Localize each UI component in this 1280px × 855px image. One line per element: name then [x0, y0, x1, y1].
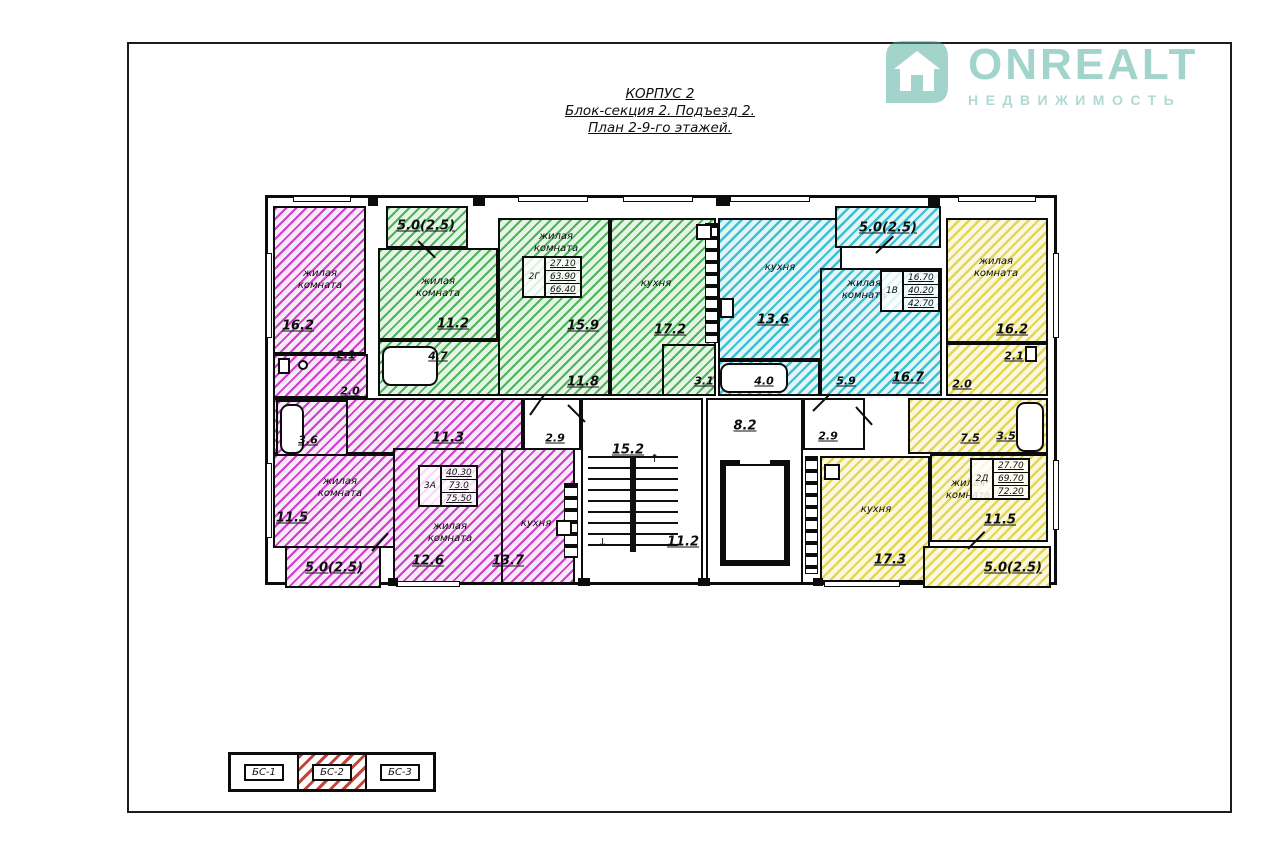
- legend-label: БС-3: [380, 764, 420, 781]
- apartment-stamp-2d: 2Д 27.70 69.70 72.20: [970, 458, 1030, 500]
- bathtub-icon: [1016, 402, 1044, 452]
- stove-icon: [824, 464, 840, 480]
- stove-icon: [696, 224, 712, 240]
- wall-pier: [578, 578, 590, 586]
- stove-icon: [556, 520, 572, 536]
- area-label: 11.8: [567, 375, 599, 390]
- window: [293, 196, 351, 202]
- area-label: 5.0(2.5): [984, 561, 1042, 576]
- area-label: 7.5: [960, 432, 980, 445]
- logo-brand: ONREALT: [968, 40, 1198, 90]
- elevator-door: [740, 456, 770, 464]
- window: [518, 196, 588, 202]
- area-label: 3.6: [298, 434, 318, 447]
- vent-shaft: [705, 223, 718, 343]
- window: [266, 463, 272, 538]
- logo-tagline: НЕДВИЖИМОСТЬ: [968, 92, 1198, 108]
- onrealt-watermark: ONREALT НЕДВИЖИМОСТЬ: [878, 28, 1234, 120]
- area-label: 2.0: [952, 378, 972, 391]
- apartment-code: 3А: [420, 467, 442, 505]
- area-label: 2.0: [340, 385, 360, 398]
- legend-cell-bs2-current: БС-2: [299, 755, 367, 789]
- window: [1053, 253, 1059, 338]
- area-label: 13.6: [757, 313, 789, 328]
- window: [266, 253, 272, 338]
- legend-cell-bs3: БС-3: [367, 755, 433, 789]
- floorplan-sheet: КОРПУС 2 Блок-секция 2. Подъезд 2. План …: [0, 0, 1280, 855]
- area-label: 17.2: [654, 323, 686, 338]
- stair-arrow-down-icon: ↓: [598, 536, 607, 549]
- area-label: 15.9: [567, 319, 599, 334]
- house-pin-icon: [878, 35, 956, 113]
- legend-label: БС-1: [244, 764, 284, 781]
- apartment-stamp-1v: 1В 16.70 40.20 42.70: [880, 270, 940, 312]
- area-label: 12.6: [412, 554, 444, 569]
- area-label: 16.2: [996, 323, 1028, 338]
- area-label: 11.2: [437, 317, 469, 332]
- stamp-total-area: 40.20: [904, 285, 938, 298]
- sink-icon: [298, 360, 308, 370]
- toilet-icon: [278, 358, 290, 374]
- area-label: 16.7: [892, 371, 924, 386]
- apartment-code: 1В: [882, 272, 904, 310]
- elevator-shaft-icon: [720, 460, 790, 566]
- window: [730, 196, 810, 202]
- room-label: жилая комната: [407, 276, 469, 300]
- room-label: жилая комната: [309, 476, 371, 500]
- window: [824, 581, 900, 587]
- floor-plan: ↑ ↓: [265, 195, 1057, 585]
- apartment-stamp-2g: 2Г 27.10 63.90 66.40: [522, 256, 582, 298]
- title-line-2: Блок-секция 2. Подъезд 2.: [520, 103, 800, 120]
- room-label: жилая комната: [965, 256, 1027, 280]
- stamp-total-with-balcony: 66.40: [546, 284, 580, 296]
- area-label: 13.7: [492, 554, 524, 569]
- window: [396, 581, 460, 587]
- area-label: 11.2: [667, 535, 699, 550]
- window: [1053, 460, 1059, 530]
- vent-shaft: [805, 456, 818, 574]
- area-label: 5.0(2.5): [859, 221, 917, 236]
- room-label: кухня: [641, 278, 671, 290]
- toilet-icon: [1025, 346, 1037, 362]
- area-label: 15.2: [612, 443, 644, 458]
- room-label: жилая комната: [419, 521, 481, 545]
- area-label: 4.7: [428, 350, 448, 363]
- window: [958, 196, 1036, 202]
- stair-arrow-up-icon: ↑: [650, 452, 659, 465]
- area-label: 3.1: [694, 375, 714, 388]
- room-label: кухня: [861, 504, 891, 516]
- wall-pier: [473, 198, 485, 206]
- stamp-total-area: 63.90: [546, 271, 580, 284]
- wall-pier: [388, 578, 398, 586]
- wall-pier: [368, 198, 378, 206]
- stamp-total-with-balcony: 75.50: [442, 493, 476, 505]
- title-line-1: КОРПУС 2: [520, 86, 800, 103]
- apartment-stamp-3a: 3А 40.30 73.0 75.50: [418, 465, 478, 507]
- legend-cell-bs1: БС-1: [231, 755, 299, 789]
- area-label: 2.1: [336, 349, 356, 362]
- staircase-icon: ↑ ↓: [588, 456, 678, 552]
- area-label: 5.0(2.5): [397, 219, 455, 234]
- area-label: 5.0(2.5): [305, 561, 363, 576]
- area-label: 2.1: [1004, 350, 1024, 363]
- block-section-legend: БС-1 БС-2 БС-3: [228, 752, 436, 792]
- room-label: жилая комната: [521, 231, 591, 255]
- bathtub-icon: [280, 404, 304, 454]
- wall-pier: [813, 578, 823, 586]
- area-label: 2.9: [545, 432, 565, 445]
- legend-label: БС-2: [312, 764, 352, 781]
- stamp-total-with-balcony: 42.70: [904, 298, 938, 310]
- apartment-code: 2Г: [524, 258, 546, 296]
- stove-icon: [720, 298, 734, 318]
- area-label: 11.3: [432, 431, 464, 446]
- area-label: 2.9: [818, 430, 838, 443]
- window: [623, 196, 693, 202]
- area-label: 5.9: [836, 375, 856, 388]
- room-label: кухня: [521, 518, 551, 530]
- area-label: 4.0: [754, 375, 774, 388]
- wall-pier: [716, 198, 730, 206]
- stamp-total-area: 69.70: [994, 473, 1028, 486]
- wall: [662, 344, 664, 396]
- stamp-living-area: 40.30: [442, 467, 476, 480]
- area-label: 11.5: [984, 513, 1016, 528]
- apartment-code: 2Д: [972, 460, 994, 498]
- area-label: 3.5: [996, 430, 1016, 443]
- stair-divider: [630, 456, 636, 552]
- wall-pier: [928, 198, 940, 206]
- stamp-total-with-balcony: 72.20: [994, 486, 1028, 498]
- stamp-living-area: 27.70: [994, 460, 1028, 473]
- stamp-total-area: 73.0: [442, 480, 476, 493]
- title-line-3: План 2-9-го этажей.: [520, 120, 800, 137]
- stamp-living-area: 27.10: [546, 258, 580, 271]
- area-label: 11.5: [276, 511, 308, 526]
- drawing-title: КОРПУС 2 Блок-секция 2. Подъезд 2. План …: [520, 86, 800, 137]
- room-label: кухня: [765, 262, 795, 274]
- wall-pier: [698, 578, 710, 586]
- area-label: 8.2: [733, 419, 756, 434]
- room-region-3a-living2: [273, 454, 395, 548]
- area-label: 16.2: [282, 319, 314, 334]
- room-label: жилая комната: [289, 268, 351, 292]
- wall: [662, 344, 716, 346]
- area-label: 17.3: [874, 553, 906, 568]
- stamp-living-area: 16.70: [904, 272, 938, 285]
